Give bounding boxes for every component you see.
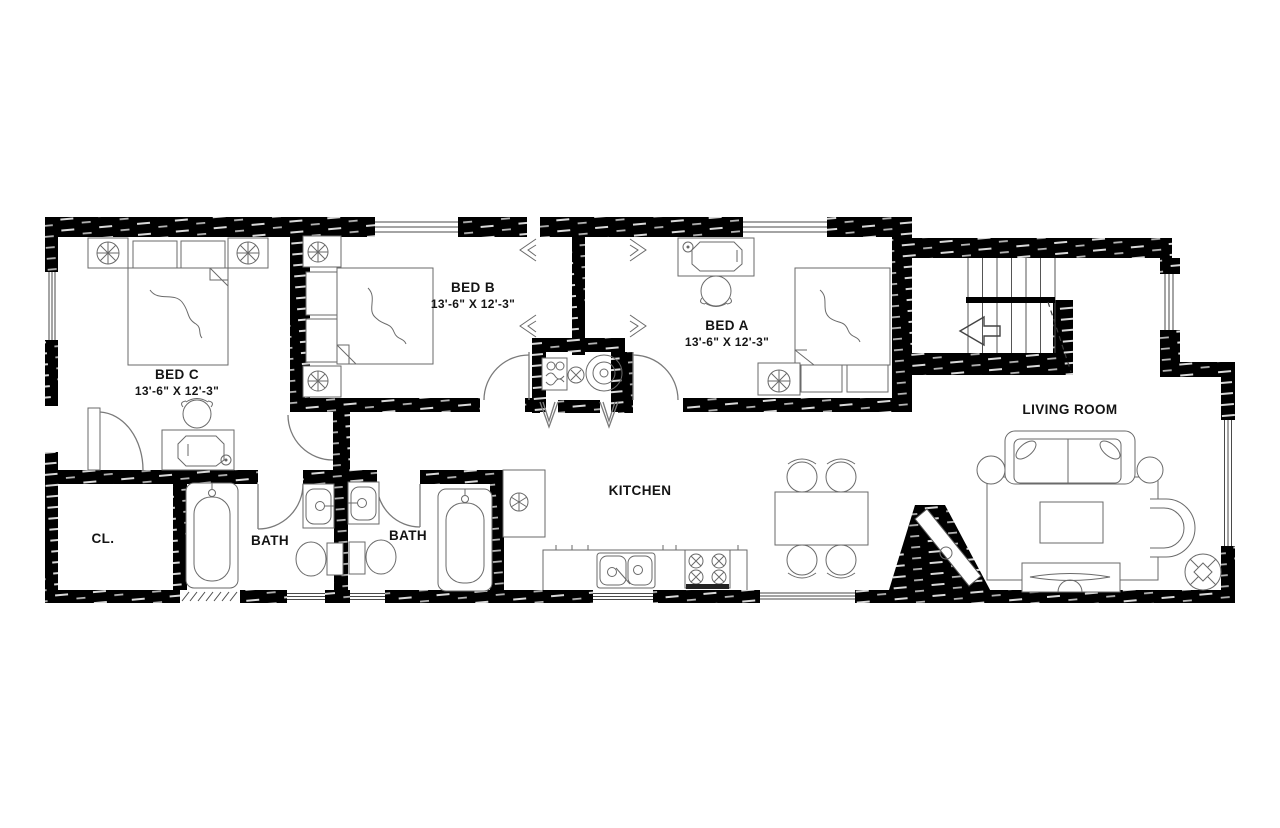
pump-cross (571, 370, 581, 380)
bed (795, 268, 890, 392)
window-hatched-sill (180, 591, 240, 602)
door-side-entry (88, 408, 143, 470)
door-bed-c (288, 415, 333, 460)
washer-icon (542, 358, 567, 390)
room-label-bath-2: BATH (389, 528, 427, 543)
window-bath-1 (287, 591, 325, 602)
toilet-icon (349, 540, 396, 574)
utility-closet (542, 355, 622, 391)
window-left-bed-c (46, 272, 57, 340)
closet-room: CL. (92, 531, 115, 546)
dining-table (775, 492, 868, 545)
window-living-right (1222, 420, 1234, 546)
window-stair-right (1162, 274, 1177, 330)
refrigerator-icon (503, 470, 545, 537)
desk-chair (701, 276, 732, 307)
room-bed-c: BED C 13'-6" X 12'-3" (88, 238, 268, 470)
bed (306, 268, 433, 364)
room-dims-bed-a: 13'-6" X 12'-3" (685, 335, 769, 349)
window-top-bed-b (375, 218, 458, 236)
table-lamp-icon (97, 242, 119, 264)
window-bath-2 (350, 591, 385, 602)
window-dining (760, 591, 855, 602)
sink-icon (303, 484, 334, 528)
room-label-closet: CL. (92, 531, 115, 546)
window-top-bed-a (743, 218, 827, 236)
desk (678, 238, 754, 276)
door-bath-2 (377, 484, 420, 527)
room-dims-bed-c: 13'-6" X 12'-3" (135, 384, 219, 398)
room-label-bed-a: BED A (705, 318, 749, 333)
side-table (977, 456, 1005, 484)
stair-direction-arrow-icon (960, 317, 1000, 345)
door-bed-a (633, 352, 678, 400)
side-table (1137, 457, 1163, 483)
room-bed-a: BED A 13'-6" X 12'-3" (630, 238, 890, 395)
kitchen-sink-icon (597, 553, 655, 588)
ceiling-fan-icon (1185, 554, 1221, 590)
coffee-table (1040, 502, 1103, 543)
desk-chair (182, 399, 213, 429)
sofa (1005, 431, 1135, 484)
stair-landing-bar (966, 297, 1055, 303)
room-dims-bed-b: 13'-6" X 12'-3" (431, 297, 515, 311)
bed (128, 241, 228, 365)
table-lamp-icon (308, 242, 328, 262)
table-lamp-icon (768, 370, 790, 392)
room-label-bed-b: BED B (451, 280, 495, 295)
stove-icon (685, 550, 730, 589)
bathtub-icon (186, 483, 238, 588)
room-label-kitchen: KITCHEN (609, 483, 672, 498)
floor-plan-drawing: BED C 13'-6" X 12'-3" BED B 13'-6" X 12'… (0, 0, 1280, 828)
room-bed-b: BED B 13'-6" X 12'-3" (303, 236, 536, 397)
desk (162, 430, 234, 470)
chevron-marks (630, 239, 646, 337)
bathroom-1: BATH (186, 483, 343, 588)
toilet-icon (296, 542, 343, 576)
tv-console (1022, 563, 1120, 592)
room-label-bed-c: BED C (155, 367, 199, 382)
room-label-living: LIVING ROOM (1022, 402, 1117, 417)
table-lamp-icon (308, 371, 328, 391)
door-bed-b (484, 352, 529, 400)
room-label-bath-1: BATH (251, 533, 289, 548)
bathtub-icon (438, 489, 492, 591)
living-room: LIVING ROOM (977, 402, 1221, 592)
dining-set (775, 459, 868, 578)
kitchen: KITCHEN (503, 459, 868, 590)
door-bath-1 (258, 484, 303, 529)
armchair (1150, 499, 1195, 557)
sink-icon (348, 482, 379, 524)
floor-plan-page: BED C 13'-6" X 12'-3" BED B 13'-6" X 12'… (0, 0, 1280, 828)
window-kitchen-sink (593, 591, 653, 602)
table-lamp-icon (237, 242, 259, 264)
chevron-marks (520, 239, 536, 337)
